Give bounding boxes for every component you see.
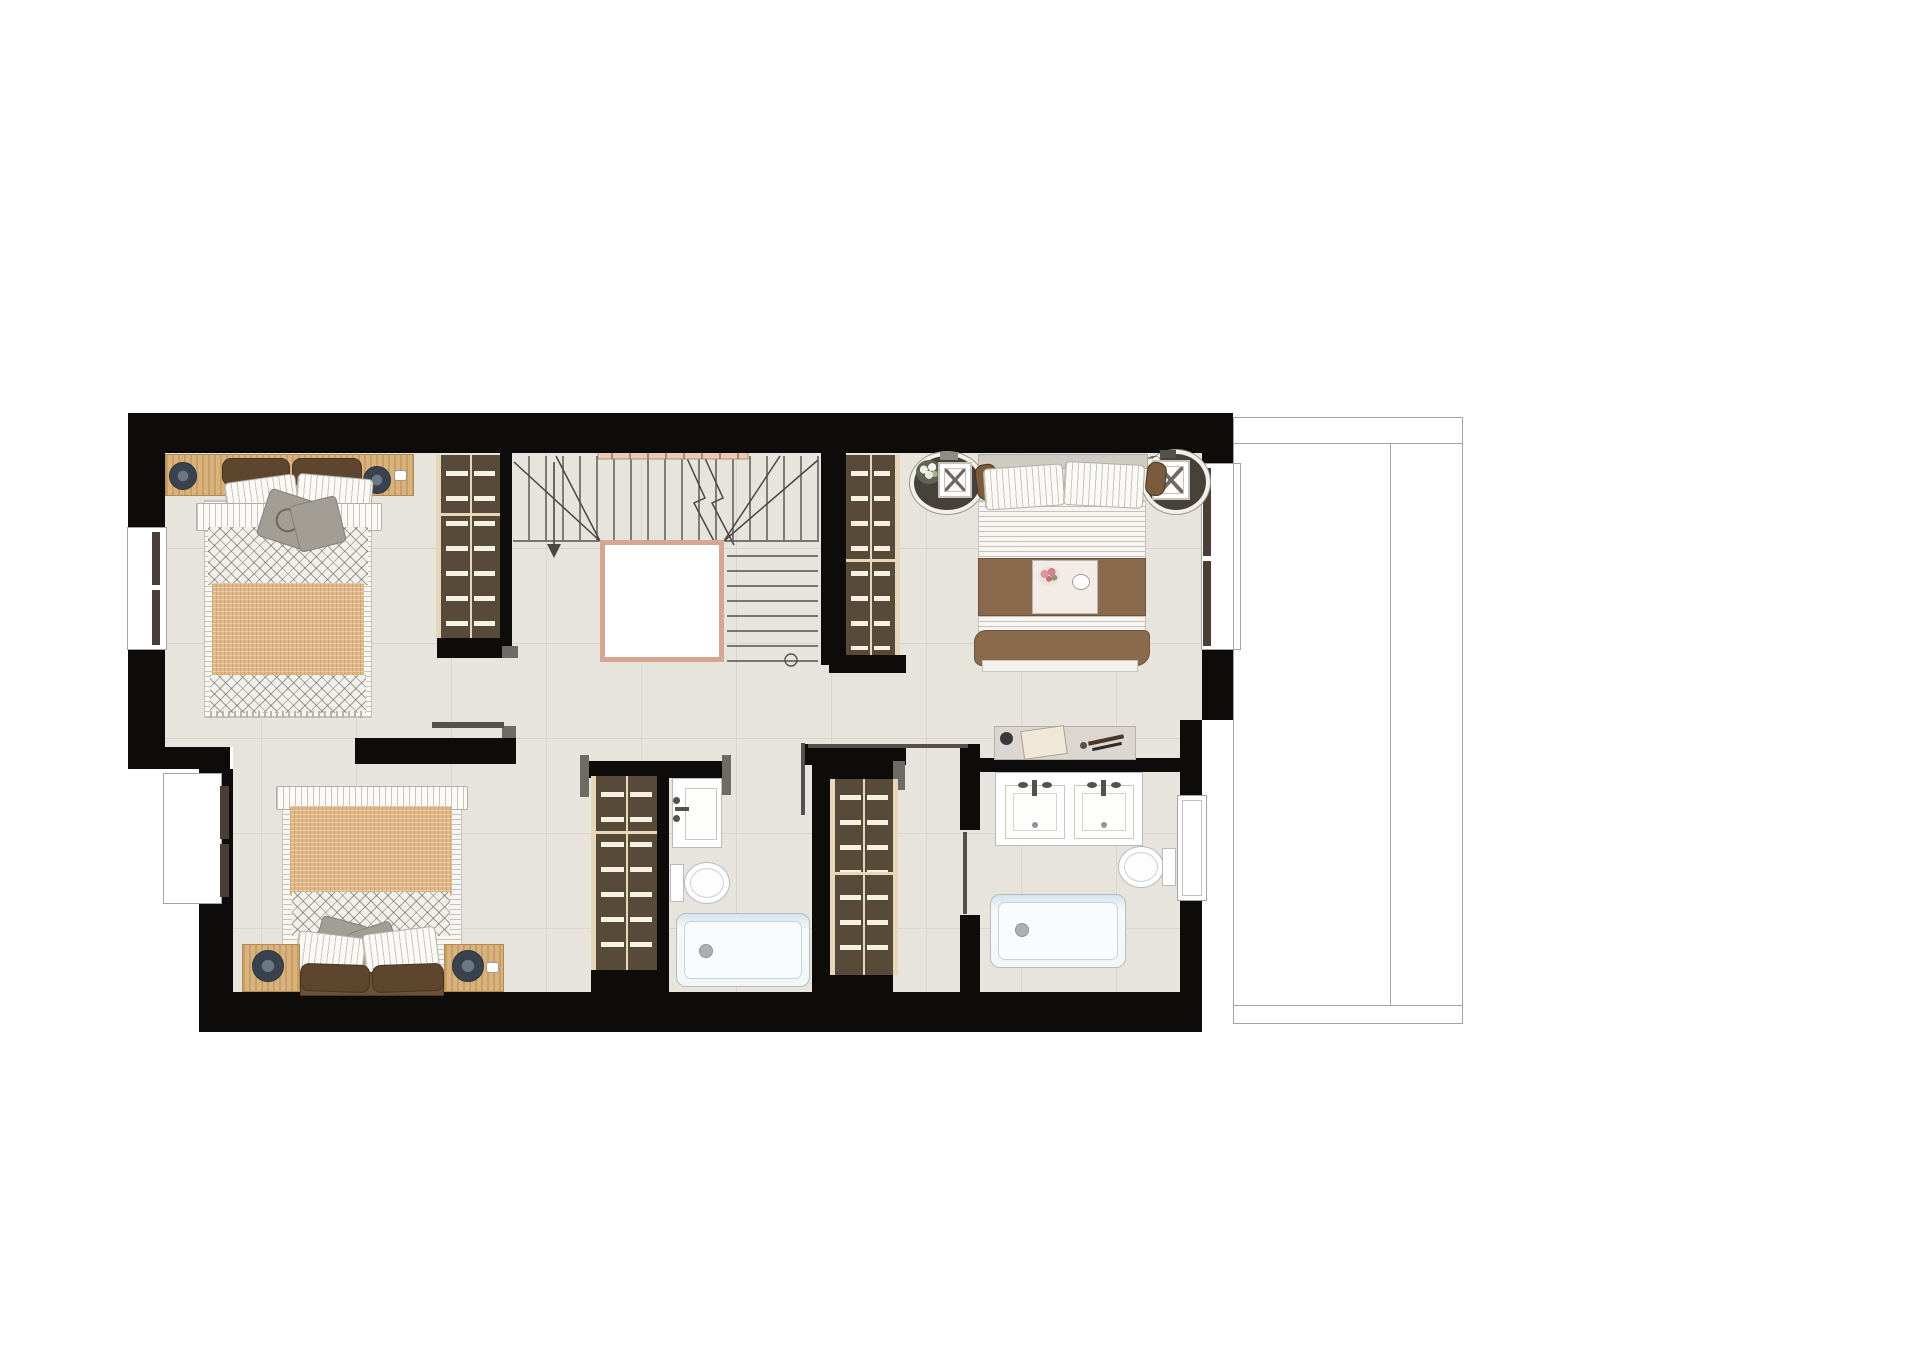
sink-faucet — [1032, 780, 1037, 796]
stair-walk-line — [547, 462, 561, 558]
sink-handle-b — [1111, 782, 1121, 788]
terrace-line-bottom — [1233, 1005, 1463, 1006]
bedroom2-blanket-fringe — [210, 711, 366, 718]
wardrobe-hanger-dashes — [630, 781, 653, 965]
bathroom1-toilet-bowl — [684, 862, 730, 904]
door-jamb-bedroom2-top — [502, 646, 518, 658]
sink-handle-a — [1018, 782, 1028, 788]
sink-drain — [1032, 822, 1038, 828]
bathtub-drain — [699, 944, 713, 958]
master-tray-flowers — [1038, 566, 1060, 586]
sink-handle-b — [1042, 782, 1052, 788]
door-leaf-bathroom2 — [963, 832, 967, 914]
wardrobe-hanger-dashes — [867, 784, 888, 970]
wall-wardrobe-master-lower-bottom — [830, 975, 893, 992]
toilet-seat — [690, 868, 724, 898]
lamp-shade-cross — [944, 468, 966, 492]
wardrobe-master-lower — [835, 779, 893, 975]
bathtub-drain — [1015, 923, 1029, 937]
window-bedroom2 — [127, 527, 167, 650]
wardrobe-section-divider — [441, 513, 500, 516]
dresser-book-stack — [1020, 725, 1068, 760]
wardrobe-center-rail — [870, 455, 872, 655]
door-leaf-bathroom1 — [801, 743, 805, 815]
window-bathroom2 — [1177, 795, 1207, 901]
bathroom1-toilet-tank — [670, 864, 684, 902]
wall-bathroom2-top — [980, 758, 1180, 772]
wall-wardrobe1-right — [500, 453, 512, 658]
bedroom3-mug — [486, 962, 499, 973]
bathroom2-toilet-bowl — [1118, 846, 1164, 888]
terrace-outline-rect — [1233, 417, 1463, 1024]
bathroom1-vanity — [672, 778, 722, 848]
sink-handle-a — [1087, 782, 1097, 788]
wardrobe-bedroom2 — [441, 455, 500, 638]
wardrobe-center-rail — [470, 455, 472, 638]
door-leaf-bedroom2 — [432, 722, 504, 728]
wardrobe-hanger-dashes — [474, 460, 496, 633]
wall-left-step — [128, 747, 230, 769]
wall-right-lower — [1180, 899, 1202, 994]
bathroom2-sink-left — [1005, 785, 1065, 839]
master-pillow-left — [983, 463, 1066, 510]
wall-stairs-right — [821, 453, 846, 665]
door-jamb-bathroom1-right — [722, 755, 731, 795]
window-bedroom2-mullion-a — [152, 532, 160, 585]
terrace-line-divider — [1390, 443, 1391, 1005]
master-pillow-right — [1063, 461, 1145, 509]
wall-bottom — [199, 992, 1202, 1032]
bathroom1-basin — [685, 788, 717, 840]
wardrobe-master-upper — [846, 455, 895, 655]
bedroom2-throw-tan — [212, 583, 364, 677]
wall-bathroom2-left-lower — [960, 915, 980, 992]
window-bathroom2-frame — [1182, 800, 1202, 896]
terrace-line-top — [1233, 443, 1463, 444]
wall-wardrobe1-bottom — [437, 638, 512, 658]
master-tray-cup — [1072, 574, 1090, 590]
wardrobe-hanger-dashes — [874, 460, 891, 650]
bedroom3-lamp-left — [252, 950, 284, 982]
wardrobe-master-upper-rail — [895, 455, 900, 655]
stair-void — [600, 540, 724, 662]
wardrobe-section-divider — [846, 559, 895, 562]
bathroom2-vanity — [995, 772, 1143, 846]
sink-drain — [1101, 822, 1107, 828]
wall-bedroom3-wardrobe-cap — [591, 968, 657, 992]
wall-bathroom2-left-upper — [960, 744, 980, 830]
master-foot-sheet-edge — [982, 660, 1138, 672]
bedroom3-lamp-right — [452, 950, 484, 982]
door-jamb-bathroom1-left — [580, 755, 589, 797]
wardrobe-section-divider — [835, 872, 893, 875]
bathroom1-bathtub — [676, 913, 810, 987]
bedroom2-mug — [394, 470, 407, 481]
bedroom3-cushion-right — [372, 963, 445, 993]
wardrobe-center-rail — [626, 776, 628, 970]
bathroom2-sink-right — [1074, 785, 1134, 839]
master-lamp-left — [938, 462, 972, 498]
toilet-seat — [1124, 852, 1158, 882]
bedroom2-lamp-left — [169, 462, 197, 490]
dresser-round-box — [1000, 732, 1013, 745]
window-bedroom2-mullion-b — [152, 590, 160, 645]
wardrobe-hanger-dashes — [446, 460, 468, 633]
bathroom1-faucet-handle-a — [673, 797, 680, 804]
door-leaf-master-bedroom — [808, 744, 968, 748]
wardrobe-center-rail — [863, 779, 865, 975]
floor-plan-canvas — [0, 0, 1920, 1357]
wardrobe-section-divider — [596, 831, 657, 834]
bathroom1-faucet-handle-b — [673, 815, 680, 822]
wardrobe-master-lower-rail-right — [893, 779, 898, 975]
wardrobe-hanger-dashes — [601, 781, 624, 965]
stair-winder-lines — [514, 456, 818, 545]
newel-circle-symbol — [785, 654, 797, 666]
wall-right-mid — [1202, 648, 1233, 720]
bathroom2-toilet-tank — [1162, 848, 1176, 886]
master-wall-item-right — [1160, 450, 1176, 458]
wall-bathroom1-left — [657, 761, 669, 992]
wall-wardrobe-master-upper-bottom — [829, 655, 906, 673]
window-bedroom3 — [163, 773, 222, 904]
bedroom3-throw-tan — [290, 806, 452, 896]
bedroom2-blanket-diamond-bottom — [210, 675, 366, 713]
door-jamb-bedroom2-bottom — [502, 726, 516, 738]
window-bedroom3-mullion-a — [220, 786, 229, 839]
wall-wardrobe-master-lower-top — [830, 761, 893, 779]
window-master-mullion-b — [1203, 561, 1211, 646]
dresser-small-item — [1080, 742, 1087, 749]
bathroom1-faucet-spout — [675, 807, 689, 811]
wall-bedroom2-bedroom3 — [355, 738, 516, 764]
wall-right-step — [1180, 720, 1202, 795]
bathroom2-bathtub — [990, 894, 1126, 968]
window-bedroom3-mullion-b — [220, 844, 229, 897]
sink-faucet — [1101, 780, 1106, 796]
wardrobe-bedroom3 — [596, 776, 657, 970]
wardrobe-hanger-dashes — [851, 460, 868, 650]
wardrobe-hanger-dashes — [840, 784, 861, 970]
bedroom3-cushion-left — [300, 963, 371, 993]
master-wall-item-left — [940, 452, 958, 460]
wall-top — [128, 413, 1233, 453]
